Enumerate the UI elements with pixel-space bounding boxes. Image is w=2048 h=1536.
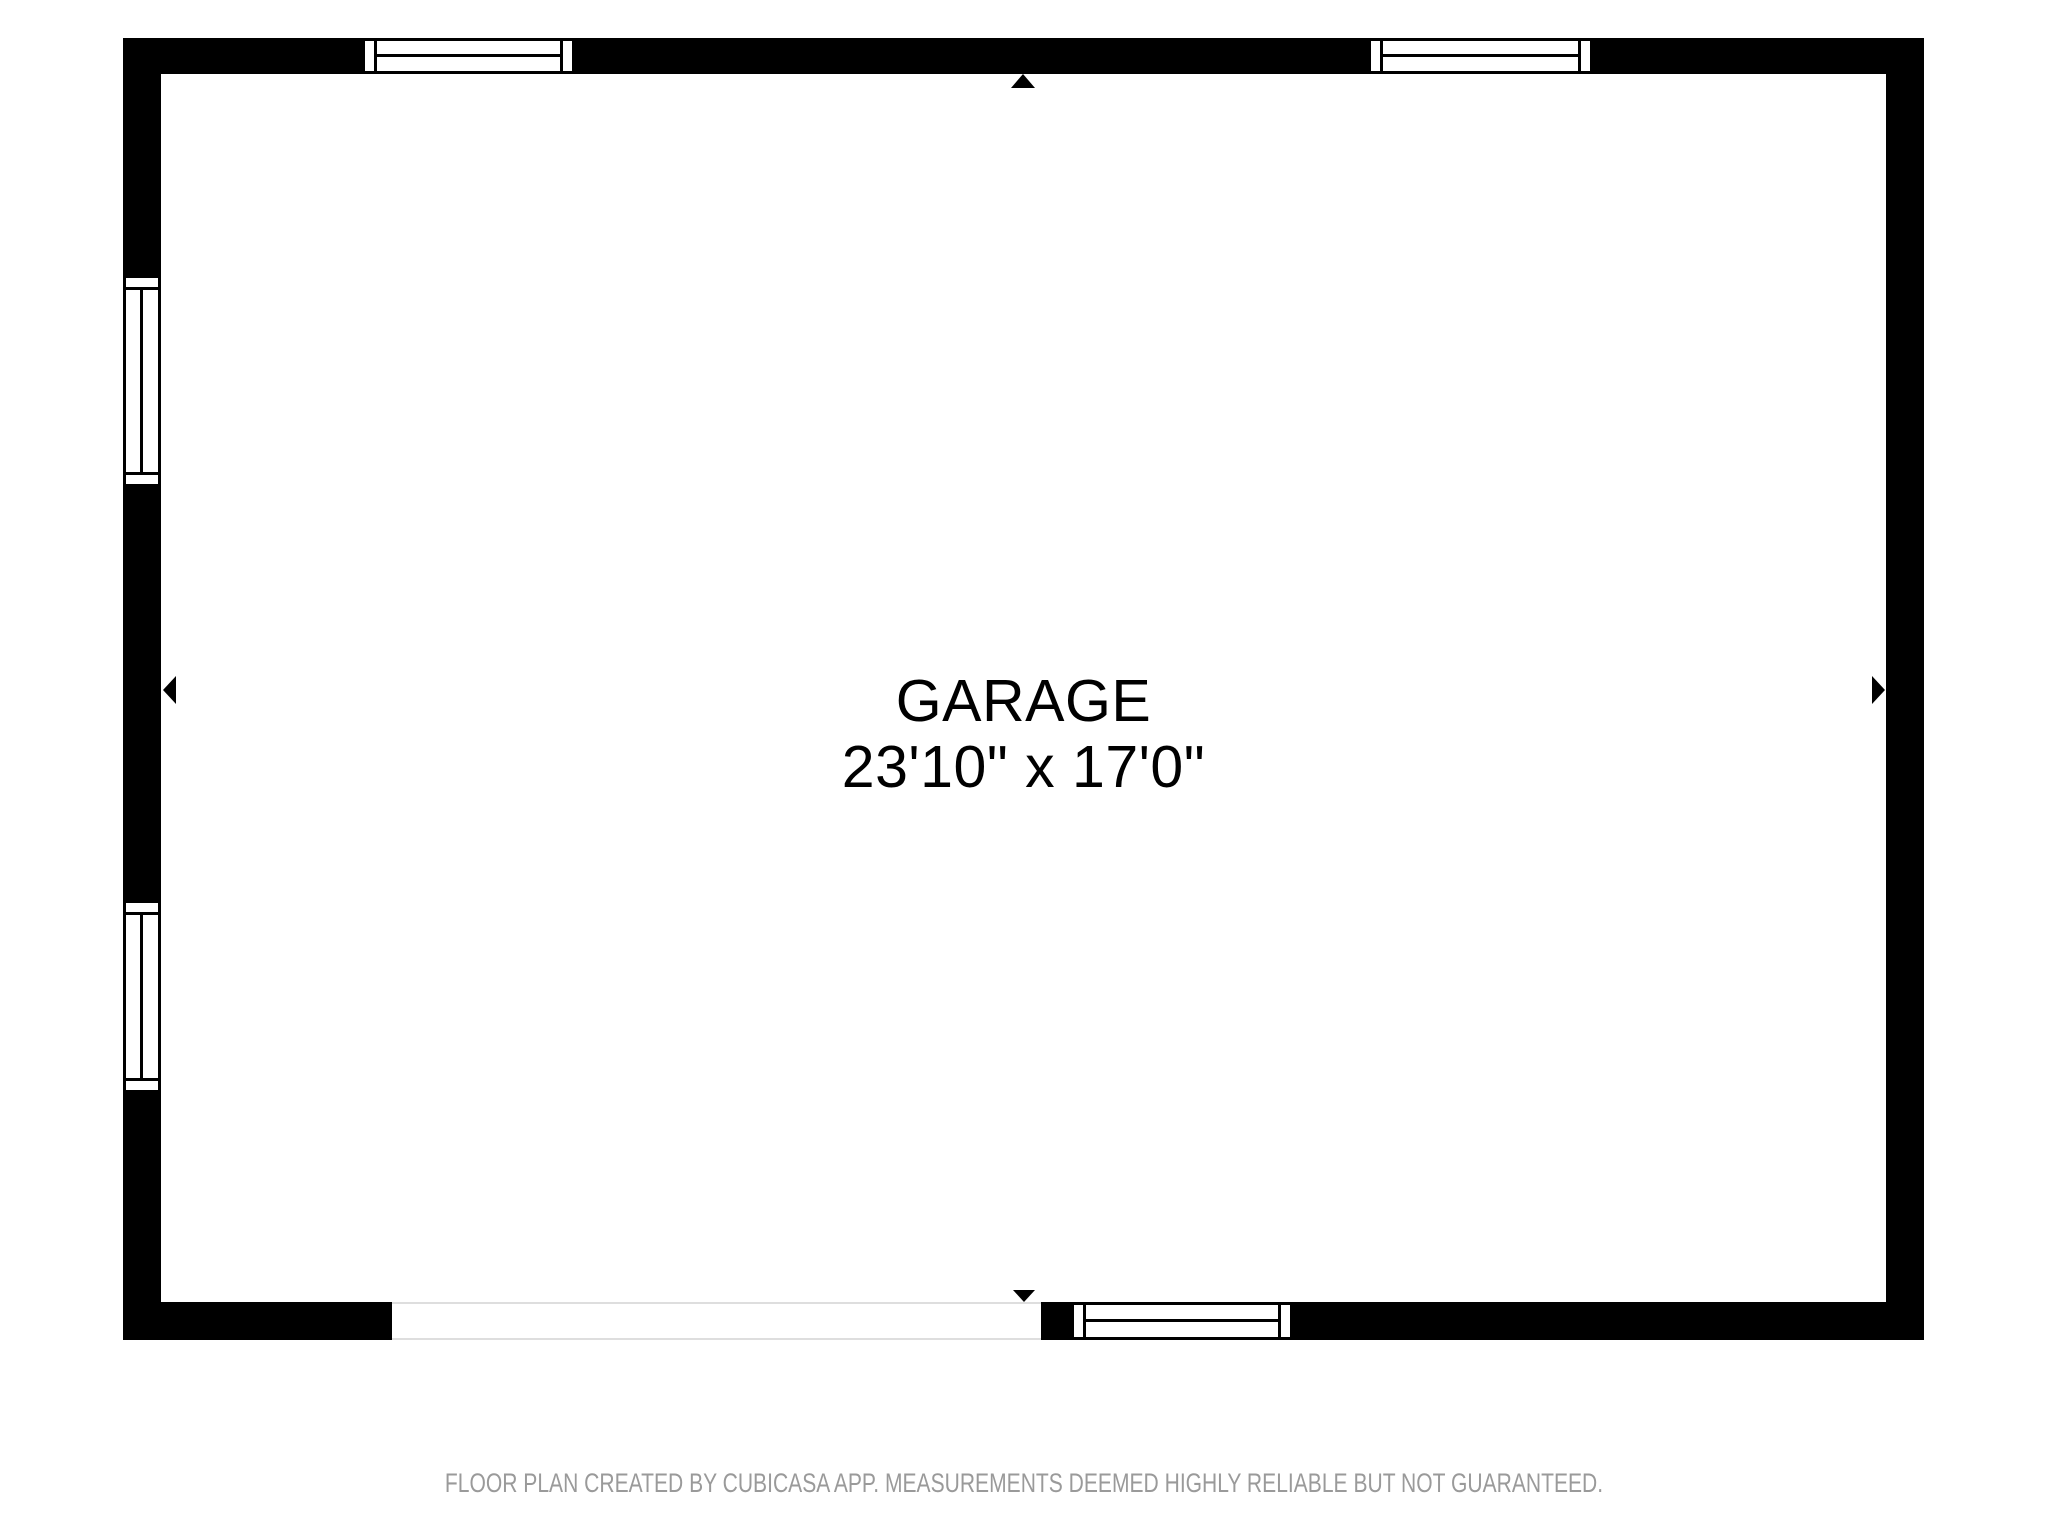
window-top-left-icon	[362, 38, 575, 74]
window-glass-line	[377, 41, 560, 71]
window-frame-cap	[126, 278, 158, 290]
garage-door-opening	[392, 1302, 1041, 1340]
floor-plan-page: GARAGE 23'10" x 17'0" FLOOR PLAN CREATED…	[0, 0, 2048, 1536]
window-frame-cap	[126, 903, 158, 915]
window-glass-line	[1086, 1305, 1278, 1337]
triangle-down-icon	[1013, 1290, 1035, 1302]
room-label: GARAGE 23'10" x 17'0"	[161, 668, 1886, 800]
window-frame-cap	[1371, 41, 1383, 71]
window-frame-cap	[1578, 41, 1590, 71]
window-glass-line	[126, 290, 158, 472]
window-glass-line	[1383, 41, 1578, 71]
room-dimensions: 23'10" x 17'0"	[161, 734, 1886, 800]
window-bottom-icon	[1071, 1302, 1293, 1340]
room-name: GARAGE	[161, 668, 1886, 734]
wall-right	[1886, 38, 1924, 1340]
window-frame-cap	[126, 1078, 158, 1090]
wall-left	[123, 38, 161, 1340]
window-frame-cap	[126, 472, 158, 484]
window-left-lower-icon	[123, 900, 161, 1093]
triangle-up-icon	[1011, 74, 1035, 88]
window-frame-cap	[365, 41, 377, 71]
window-top-right-icon	[1368, 38, 1593, 74]
window-left-upper-icon	[123, 275, 161, 487]
window-frame-cap	[1074, 1305, 1086, 1337]
footer-disclaimer: FLOOR PLAN CREATED BY CUBICASA APP. MEAS…	[225, 1468, 1822, 1498]
window-frame-cap	[560, 41, 572, 71]
window-glass-line	[126, 915, 158, 1078]
window-frame-cap	[1278, 1305, 1290, 1337]
